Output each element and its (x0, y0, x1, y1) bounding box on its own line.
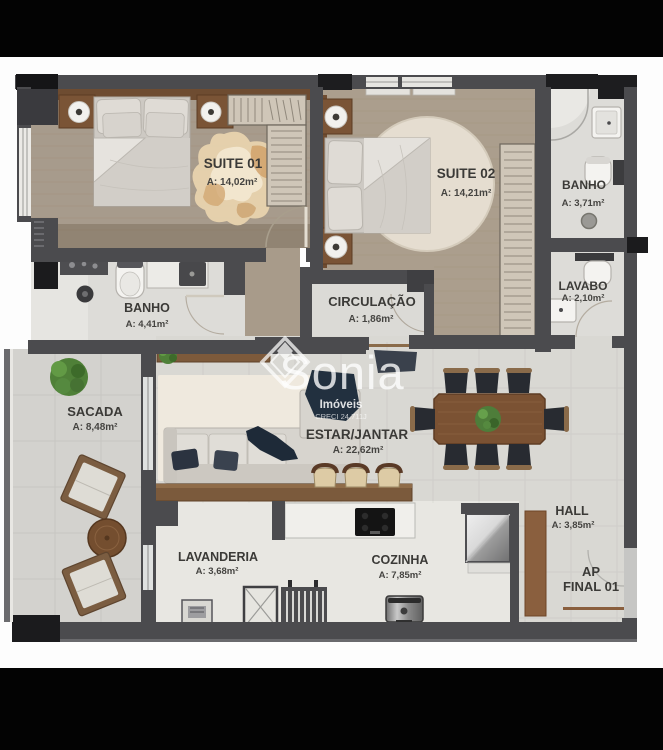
svg-text:SUITE 01: SUITE 01 (204, 156, 263, 171)
svg-text:Sonia: Sonia (279, 346, 404, 399)
svg-text:A: 14,21m²: A: 14,21m² (441, 188, 492, 199)
svg-text:LAVANDERIA: LAVANDERIA (178, 550, 258, 564)
svg-text:A: 7,85m²: A: 7,85m² (379, 570, 422, 581)
svg-text:Imóveis: Imóveis (320, 399, 363, 411)
svg-text:LAVABO: LAVABO (559, 279, 608, 293)
svg-text:COZINHA: COZINHA (372, 553, 429, 567)
svg-text:A: 4,41m²: A: 4,41m² (126, 319, 169, 330)
svg-text:BANHO: BANHO (562, 178, 606, 192)
svg-text:A: 3,71m²: A: 3,71m² (562, 198, 605, 209)
svg-text:A: 1,86m²: A: 1,86m² (348, 314, 394, 325)
svg-text:ESTAR/JANTAR: ESTAR/JANTAR (306, 427, 409, 442)
svg-text:A: 8,48m²: A: 8,48m² (72, 422, 118, 433)
svg-text:HALL: HALL (555, 504, 589, 518)
svg-text:SUITE 02: SUITE 02 (437, 166, 496, 181)
svg-text:FINAL 01: FINAL 01 (563, 579, 619, 594)
svg-text:A: 14,02m²: A: 14,02m² (207, 177, 258, 188)
svg-text:SACADA: SACADA (67, 404, 123, 419)
svg-text:CRECI 24.711J: CRECI 24.711J (315, 412, 367, 421)
svg-text:BANHO: BANHO (124, 301, 170, 315)
svg-text:A: 22,62m²: A: 22,62m² (333, 445, 384, 456)
svg-text:CIRCULAÇÃO: CIRCULAÇÃO (328, 294, 415, 309)
svg-text:AP: AP (582, 564, 600, 579)
svg-text:A: 2,10m²: A: 2,10m² (562, 293, 605, 304)
svg-text:A: 3,85m²: A: 3,85m² (552, 520, 595, 531)
svg-text:A: 3,68m²: A: 3,68m² (196, 566, 239, 577)
